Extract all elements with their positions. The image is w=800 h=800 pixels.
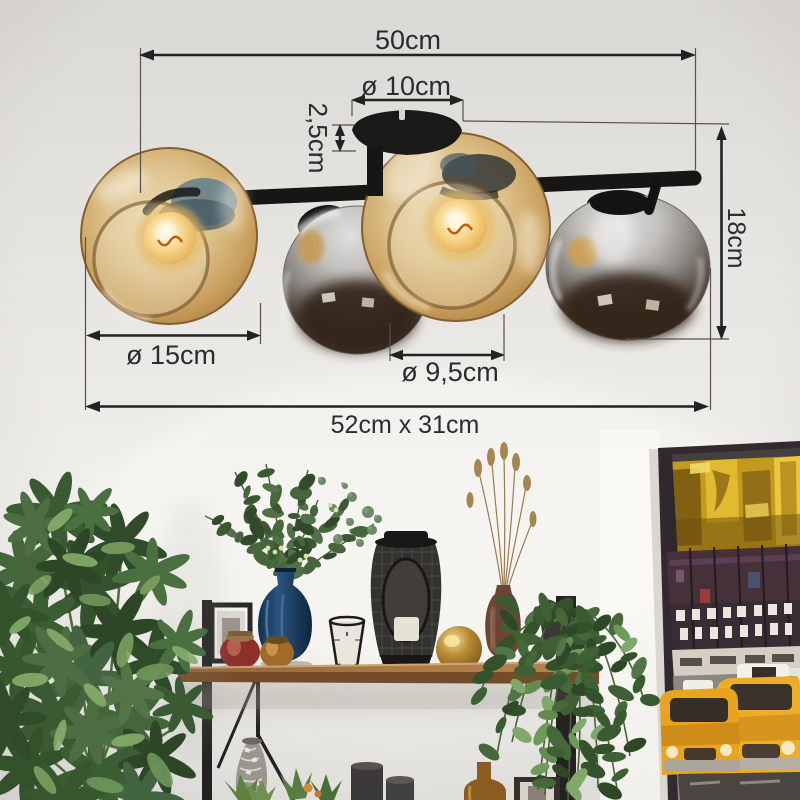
svg-text:50cm: 50cm <box>375 25 441 55</box>
svg-text:18cm: 18cm <box>722 207 750 268</box>
svg-text:ø 10cm: ø 10cm <box>361 71 451 101</box>
svg-text:ø 9,5cm: ø 9,5cm <box>401 357 499 387</box>
svg-text:ø 15cm: ø 15cm <box>126 340 216 370</box>
svg-text:52cm x 31cm: 52cm x 31cm <box>331 411 480 439</box>
svg-text:2,5cm: 2,5cm <box>303 103 333 174</box>
